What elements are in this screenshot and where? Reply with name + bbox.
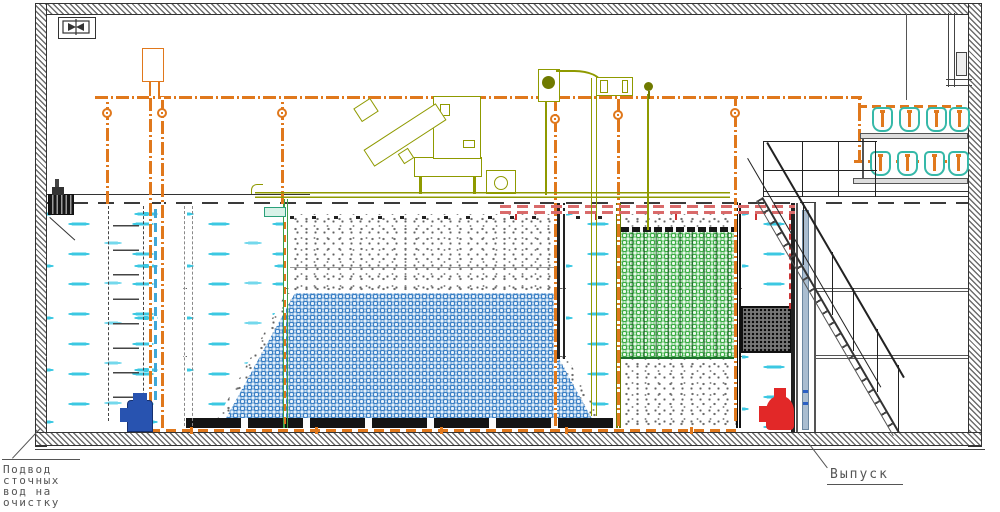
recycle-tick-4: [755, 214, 757, 220]
top-wall: [35, 3, 982, 15]
airlift-blue-pipe: [154, 205, 157, 400]
motor-detail-2: [622, 80, 628, 93]
ladder: [108, 206, 144, 421]
partition-green-airline: [284, 210, 286, 424]
vent-box: [58, 17, 96, 39]
fan-icon: [59, 18, 93, 36]
stair-post-2: [832, 252, 833, 315]
airlift-olive-pipe: [591, 78, 597, 416]
recycle-tick-3: [675, 214, 677, 220]
outlet-pipe-mark-2: [803, 402, 808, 405]
receiver-stem-2: [158, 82, 160, 96]
floor-slab: [35, 432, 982, 446]
partition-mid-1: [557, 203, 560, 359]
outlet-pump-body: [766, 396, 794, 430]
lower-shelf: [853, 178, 968, 184]
valve-icon-5: [613, 110, 623, 120]
cad-section-drawing: Подвод сточных вод на очистку Выпуск: [0, 0, 1000, 512]
blower-icon-u1: [872, 107, 893, 132]
vent-duct: [948, 13, 955, 87]
rail-post-2: [802, 141, 803, 197]
air-drop-7: [734, 99, 737, 421]
screen-table: [414, 157, 482, 177]
duct-ledge: [946, 79, 972, 86]
discharge-spout: [398, 148, 415, 165]
inlet-label: Подвод сточных вод на очистку: [3, 464, 98, 508]
valve-icon-6: [730, 108, 740, 118]
stair-post-5: [898, 365, 899, 431]
header-clip-4: [565, 427, 568, 434]
frame-post: [906, 14, 907, 100]
inlet-label-line4: очистку: [3, 497, 98, 508]
olive-drop-1: [545, 100, 547, 195]
valve-icon-4: [550, 114, 560, 124]
flotation-layer: [290, 214, 558, 295]
blower-icon-u3: [926, 107, 947, 132]
outlet-pipe-mark-1: [803, 390, 808, 393]
stair-post-4: [877, 329, 878, 392]
inlet-pump-cap: [133, 393, 147, 402]
vent-valve-dot: [644, 82, 653, 91]
inlet-screen-stem: [55, 179, 59, 187]
stair-post-1: [803, 203, 804, 265]
outlet-pump-cap: [774, 388, 786, 397]
valve-icon-1: [102, 108, 112, 118]
partition-mid-2: [563, 203, 565, 359]
air-drop-5: [554, 99, 557, 426]
contact-load-block: [741, 306, 792, 353]
blower-icon-l2: [897, 151, 918, 176]
valve-icon-2: [157, 108, 167, 118]
outlet-label: Выпуск: [830, 469, 889, 480]
blower-icon-u4: [949, 107, 970, 132]
receiver-stem-1: [149, 82, 151, 96]
air-drop-3: [161, 96, 164, 428]
shelf-support: [862, 139, 864, 179]
diffuser-strip: [186, 418, 617, 428]
blower-icon-l1: [870, 151, 891, 176]
outlet-leader-underline: [827, 484, 903, 485]
floor-air-header: [150, 429, 742, 432]
blower-icon-l3: [924, 151, 945, 176]
landing-rail-top: [763, 141, 877, 142]
cabinet-detail-2: [463, 140, 475, 148]
air-drop-2: [149, 96, 152, 426]
inlet-screen-motor: [52, 187, 64, 195]
flotation-layer-line: [290, 267, 558, 268]
inlet-pump-foot: [120, 408, 128, 422]
air-receiver-tank: [142, 48, 164, 82]
conveyor-drive: [353, 98, 378, 122]
air-drop-6: [617, 99, 620, 426]
foundation-line: [35, 449, 985, 450]
ground-level-dashed-line: [46, 202, 968, 204]
valve-icon-3: [277, 108, 287, 118]
sludge-pipe: [255, 192, 730, 198]
stair-post-3: [853, 288, 854, 351]
duct-box: [956, 52, 967, 76]
weir-box: [264, 207, 286, 217]
guide-rail-dashed-1: [184, 206, 185, 426]
outlet-pump-foot: [759, 406, 767, 422]
air-drop-blowers: [858, 99, 861, 163]
header-clip-3: [440, 427, 443, 434]
olive-drop-2: [647, 94, 649, 230]
header-clip-2: [315, 427, 318, 434]
header-clip-5: [690, 427, 693, 434]
recycle-tick-1: [515, 214, 517, 220]
blower-icon-l4: [948, 151, 969, 176]
upper-shelf: [860, 133, 968, 139]
inlet-screen-box: [48, 194, 74, 215]
stairroom-beam-upper: [812, 288, 968, 292]
compressor-impeller: [542, 76, 555, 89]
right-wall: [968, 3, 982, 447]
vent-valve-stem: [648, 91, 650, 99]
rail-post-4: [875, 141, 876, 197]
feed-pump-volute: [494, 176, 508, 190]
motor-detail-1: [600, 80, 608, 93]
header-clip-1: [190, 427, 193, 434]
outlet-chamber-water-top: [742, 209, 791, 307]
left-wall: [35, 3, 47, 447]
biofilter-media-ribs: [621, 232, 737, 358]
biofilter-top-gravel: [621, 214, 737, 228]
guide-rail-dashed-2: [192, 206, 193, 426]
biofilter-underdrain-gravel: [621, 359, 737, 426]
landing-rail-mid: [763, 170, 877, 171]
rail-post-3: [838, 141, 839, 197]
inlet-pump-body: [127, 400, 153, 432]
sludge-pipe-elbow: [251, 184, 263, 194]
blower-icon-u2: [899, 107, 920, 132]
inlet-leader-underline: [2, 459, 80, 460]
